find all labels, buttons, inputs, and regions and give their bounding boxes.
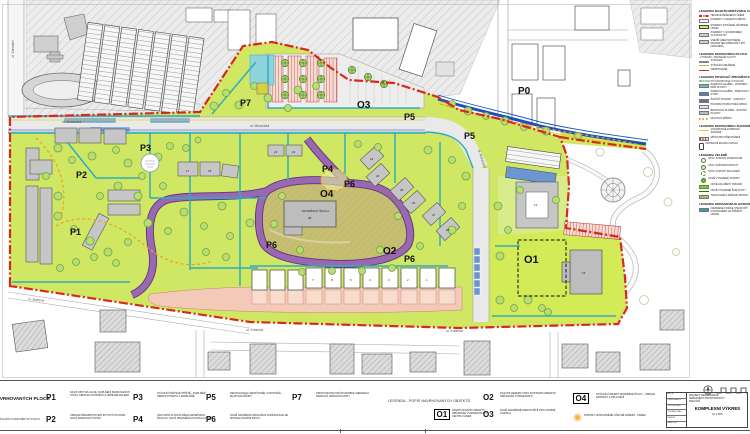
zone-label-p2: P2 [76,170,87,180]
zone-label-p6a: P6 [344,179,355,189]
svg-text:28: 28 [446,228,450,232]
svg-text:25: 25 [400,188,404,192]
affected-land-swatch [699,25,709,29]
legend-section-road-marking: LEGENDA DOPRAVNÍHO ZNAČENÍ VODOROVNÉ DOP… [699,124,749,150]
waste-containers-swatch [699,208,709,212]
legend-item: BETONOVÁ DLAŽBA - OSTATNÍ PLOCHY [699,110,749,116]
legend-item: STÁV. STROMY PONECHANÉ [699,158,749,163]
legend-item: MLATOVÁ PĚŠINA [699,118,749,121]
removed-line-swatch [699,65,709,66]
street-label: ul. Moravská [250,124,269,128]
new-tree-icon [701,178,706,183]
existing-line-swatch [699,61,709,63]
bottom-legend-header: LEGENDA NAVRHOVANÝCH PLOCH [0,396,50,401]
hedge-swatch [699,191,709,193]
zone-label-p7: P7 [240,98,251,108]
object-label-o4: O4 [573,393,589,404]
bottom-legend-strip: LEGENDA NAVRHOVANÝCH PLOCH — STAVEBNÍ ÚP… [0,380,750,434]
legend-item: STÁV. STROMY KE KÁCENÍ [699,171,749,176]
proposed-line-swatch [699,70,709,71]
plocha-desc-p2: ÚPRAVA PŘEDPROSTORŮ BYTOVÝCH DOMŮ, NOVÁ … [70,414,130,420]
street-label: ul. Krásová [446,329,463,333]
kindergarten-building [284,201,336,227]
legend-item: NOVĚ VYSAZENÉ STROMY [699,178,749,183]
plocha-desc-p6: NOVĚ NAVRŽENÁ OBSLUŽNÁ KOMUNIKACE SE ZPO… [230,414,288,420]
legend-item: ŽIVIČNÝ POVRCH - VOZOVKY [699,99,749,103]
plocha-desc-p7: PROSTOR PRO KRÁTKODOBOU REKREACI, PARKOV… [316,392,374,398]
svg-text:17: 17 [186,169,190,173]
legend-item: TRVALKOVÉ A KEŘOVÉ ZÁHONY [699,195,749,199]
objects-legend-header: LEGENDA - POPIS NAVRHOVANÝCH OBJEKTŮ [388,399,470,403]
legend-item: NOVĚ ZALOŽENÝ TRÁVNÍK [699,184,749,188]
plocha-label-p2: P2 [46,415,56,424]
existing-shrub-icon [701,165,706,170]
legend-item: MÍSTA PRO PŘECHÁZENÍ [699,137,749,141]
legend-panel: LEGENDA MAJETKOPRÁVNÍCH VZTAHŮ HRANICE Ř… [699,6,749,218]
legend-item: VNĚJŠÍ ÚZEMÍ DOTČENÉ PROJEKTEM (PŘELOŽKY… [699,40,749,49]
zone-label-p4: P4 [322,164,333,174]
legend-item: ZÁMKOVÁ DLAŽBA - CHODNÍKY, PĚŠÍ PLOCHY [699,84,749,90]
zone-label-p3: P3 [140,143,151,153]
bottom-legend-header-note: — STAVEBNÍ ÚPRAVY STÁVAJÍCÍCH ZPEVNĚNÝCH… [0,418,40,421]
legend-item: DOPRAVNÍ ZNAČKA SVISLÁ [699,143,749,150]
street-label: ul. Krásová [246,328,263,332]
zone-label-p0: P0 [518,86,531,97]
outer-area-swatch [699,40,709,44]
plan-sheet: P1 P2 P3 P4 P5 P5 P6 P6 P6 P7 O1 O2 O3 O… [0,0,750,434]
street-label: ul. Moravská [62,120,81,124]
concrete-swatch [699,111,709,115]
legend-item: POZEMKY DOTČENÉ NÁVRHEM ÚPRAV [699,25,749,31]
zone-label-p5b: P5 [464,131,475,141]
drawing-scale: M 1:500 [689,412,746,416]
traffic-sign-icon [699,143,704,150]
legend-section-traffic-areas: LEGENDA DOPRAVNÍCH PLOCH - CHODNÍKY, ZPE… [699,52,749,72]
school-label: MATEŘSKÁ ŠKOLA [302,208,329,213]
zone-label-o1: O1 [524,254,539,266]
unchanged-surface-swatch [699,105,709,109]
title-block-table: AKCE OBJEDNATEL PROJEKTANT VYPRACOVAL DA… [666,392,748,428]
sheet-bottom-border [0,430,750,431]
legend-section-waste: LEGENDA ODPADOVÉHO HOSPODÁŘSTVÍ NAVRŽENÉ… [699,202,749,216]
object-desc-o4: STÁVAJÍCÍ OBJEKT MATEŘSKÉ ŠKOLY - ÚPRAVA… [596,393,656,399]
existing-tree-icon [701,158,706,163]
zone-label-p5a: P5 [404,112,415,122]
legend-item: PŮVODNÍ POVRCH BEZ ÚPRAV [699,104,749,108]
legend-item: NAVRHOVANÉ [699,69,749,72]
plocha-label-p7: P7 [292,393,302,402]
legend-section-ownership: LEGENDA MAJETKOPRÁVNÍCH VZTAHŮ HRANICE Ř… [699,9,749,48]
garage-rows [77,22,204,116]
svg-text:12: 12 [534,203,538,207]
legend-item: STÁV. KEŘOVÉ POROSTY [699,165,749,170]
street-label: ul. Zahradní [11,40,15,58]
paving-parking-swatch [699,92,709,96]
felled-tree-note: STROMY ODSTRANĚNÉ VČETNĚ PAŘEZŮ - PAŘEZ [584,414,652,417]
zone-label-o2: O2 [383,246,397,257]
crossing-swatch [699,137,709,141]
title-block-row-labels: AKCE OBJEDNATEL PROJEKTANT VYPRACOVAL DA… [667,393,687,427]
paving-walkway-swatch [699,84,709,88]
plocha-desc-p1: NOVÁ OBYTNÁ ULICE, DOPLNĚNÍ PARKOVACÍCH … [70,391,130,397]
drawing-title: KOMPLEXNÍ VÝKRES [689,406,746,411]
gravel-path-swatch [699,118,709,120]
legend-item: VODOROVNÉ DOPRAVNÍ ZNAČENÍ [699,129,749,135]
zone-label-o3: O3 [357,100,371,111]
school-number: 38 [308,216,312,220]
zone-label-p6c: P6 [404,254,415,264]
legend-section-greenery: LEGENDA ZELENĚ STÁV. STROMY PONECHANÉ ST… [699,153,749,199]
svg-text:16: 16 [582,271,586,275]
svg-text:26: 26 [412,201,416,205]
legend-item: POZEMKY V MAJETKU MĚSTA [699,19,749,23]
plocha-label-p3: P3 [133,393,143,402]
svg-text:24: 24 [376,174,380,178]
zone-label-o4: O4 [320,189,334,200]
plocha-label-p6: P6 [206,415,216,424]
lawn-swatch [699,185,709,189]
svg-text:27: 27 [432,213,436,217]
city-land-swatch [699,19,709,23]
title-block-content: PROJEKT REGENERACE VEŘEJNÉHO PROSTRANSTV… [687,393,747,427]
object-label-o1: O1 [434,409,450,420]
legend-item: STÁVAJÍCÍ [699,60,749,63]
flowerbed-swatch [699,195,709,199]
title-block: AKCE OBJEDNATEL PROJEKTANT VYPRACOVAL DA… [664,382,748,428]
svg-text:18: 18 [208,169,212,173]
horizontal-marking-swatch [699,130,709,131]
site-plan-map: P1 P2 P3 P4 P5 P5 P6 P6 P6 P7 O1 O2 O3 O… [0,0,692,380]
legend-section-surfaces: LEGENDA POVRCHŮ ZPEVNĚNÝCH PLOCH PRO PLO… [699,75,749,120]
asphalt-swatch [699,99,709,103]
svg-text:21: 21 [274,150,278,154]
plocha-desc-p5: REVITALIZACE ÚZEMÍ PODÉL VODOTEČE, MLATO… [230,392,288,398]
object-label-o3: O3 [483,410,494,419]
legend-item: NOVĚ VYSAZENÉ ŽIVÉ PLOTY [699,190,749,193]
legend-item: POZEMKY V SOUKROMÉM VLASTNICTVÍ [699,32,749,38]
boundary-line-swatch [699,15,709,17]
felled-tree-note-icon [575,415,580,420]
plocha-label-p5: P5 [206,393,216,402]
object-desc-o2: PLOCHA REZERVY PRO DOSTAVBU OBJEKTU OBČA… [500,392,556,398]
zone-label-p1: P1 [70,227,81,237]
plocha-label-p1: P1 [46,393,56,402]
object-desc-o3: NOVĚ NAVRŽENÉ PARKOVIŠTĚ PRO OSOBNÍ VOZI… [500,409,556,415]
zone-label-p6b: P6 [266,240,277,250]
svg-text:23: 23 [370,157,374,161]
plocha-label-p4: P4 [133,415,143,424]
object-label-o2: O2 [483,393,494,402]
legend-item: ZÁMKOVÁ DLAŽBA - PARKOVACÍ STÁNÍ [699,91,749,97]
legend-item: NAVRŽENÉ POZICE STANOVIŠŤ KONTEJNERŮ NA … [699,208,749,217]
felled-tree-icon [701,171,706,176]
svg-text:22: 22 [292,150,296,154]
private-land-swatch [699,33,709,37]
